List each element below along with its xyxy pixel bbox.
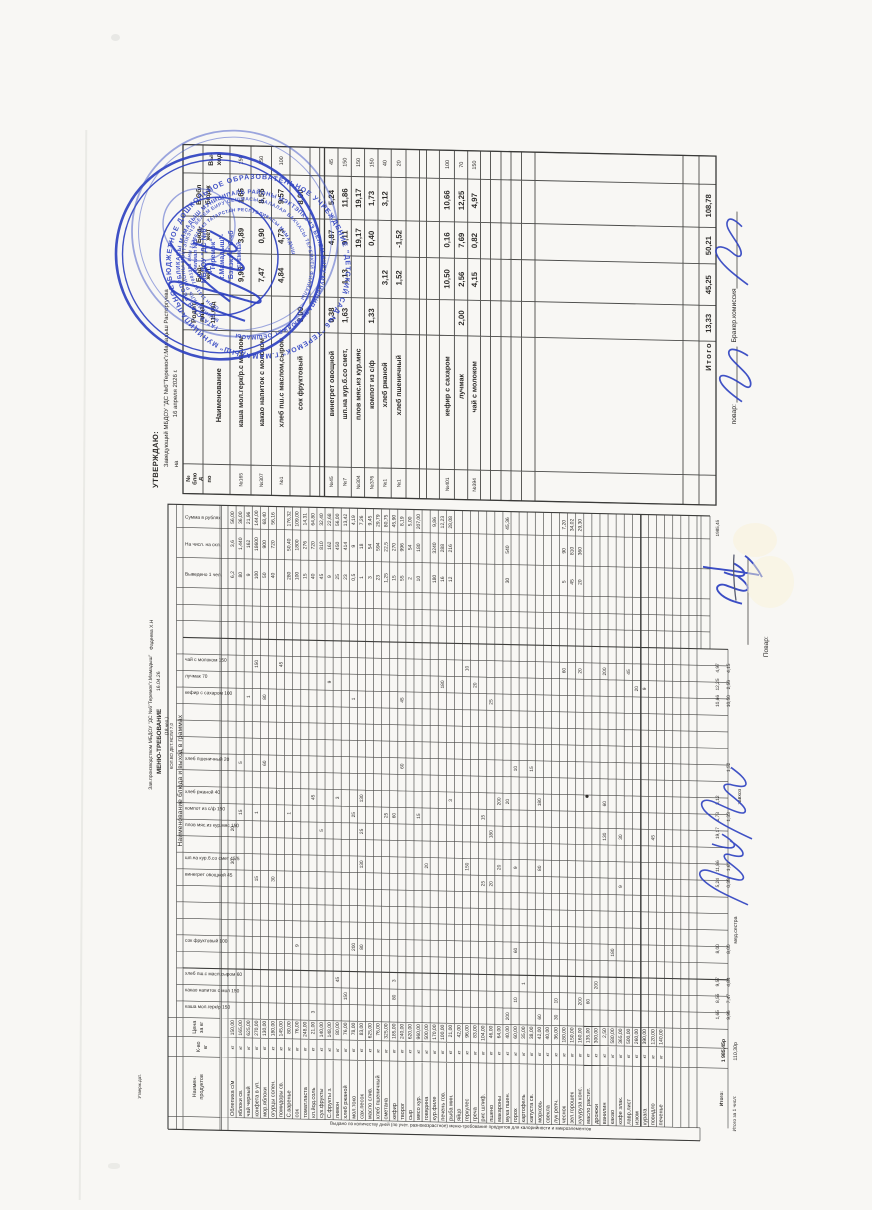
svg-text:9,57: 9,57	[715, 977, 721, 987]
svg-text:4,97: 4,97	[715, 663, 721, 673]
svg-text:260,00: 260,00	[634, 1029, 640, 1045]
svg-text:180: 180	[432, 575, 438, 584]
svg-text:13,42: 13,42	[343, 513, 349, 526]
svg-text:30: 30	[505, 578, 511, 584]
svg-text:лучмак 70: лучмак 70	[185, 673, 208, 679]
svg-text:15: 15	[238, 809, 244, 815]
svg-text:280: 280	[286, 571, 292, 580]
svg-text:60: 60	[513, 947, 519, 953]
svg-text:печенье: печенье	[659, 1104, 665, 1125]
svg-text:кг: кг	[400, 1049, 405, 1053]
svg-text:свекла: свекла	[545, 1104, 551, 1123]
svg-text:1,73: 1,73	[367, 190, 376, 206]
svg-text:кг: кг	[569, 1053, 574, 1057]
svg-text:365,00: 365,00	[618, 1028, 624, 1044]
svg-text:83,00: 83,00	[472, 1025, 478, 1038]
svg-text:15: 15	[303, 573, 309, 579]
svg-text:2,00: 2,00	[457, 310, 466, 326]
svg-text:3,89: 3,89	[236, 227, 245, 243]
svg-text:150,00: 150,00	[230, 1020, 236, 1036]
svg-text:19,17: 19,17	[354, 188, 363, 208]
svg-text:30: 30	[270, 876, 276, 882]
svg-text:390,00: 390,00	[642, 1029, 648, 1045]
svg-text:80,75: 80,75	[383, 514, 389, 527]
svg-text:20: 20	[634, 686, 640, 692]
svg-text:кг: кг	[602, 1053, 607, 1057]
svg-text:по: по	[207, 475, 213, 483]
svg-text:110,30р: 110,30р	[733, 1042, 739, 1061]
svg-text:8,19: 8,19	[400, 516, 406, 526]
svg-text:35,00: 35,00	[521, 1026, 527, 1039]
svg-text:45: 45	[335, 976, 341, 982]
svg-text:изюм: изюм	[634, 1111, 640, 1125]
svg-text:594: 594	[375, 542, 381, 551]
svg-text:130: 130	[359, 794, 365, 802]
svg-text:34,02: 34,02	[569, 518, 575, 531]
svg-text:720: 720	[311, 541, 317, 550]
svg-text:кг: кг	[448, 1050, 453, 1054]
svg-text:Зав.производством МБДОУ "ДС №6: Зав.производством МБДОУ "ДС №6"Теремок"г…	[148, 654, 154, 789]
svg-text:25: 25	[383, 812, 389, 818]
svg-text:конфета в уп.: конфета в уп.	[254, 1081, 260, 1117]
svg-text:180: 180	[440, 680, 446, 688]
svg-text:40,00: 40,00	[545, 1027, 551, 1040]
svg-text:25: 25	[359, 828, 365, 834]
svg-text:50,40: 50,40	[286, 538, 292, 551]
svg-text:248,00: 248,00	[303, 1021, 309, 1037]
svg-text:7,26: 7,26	[359, 515, 365, 525]
svg-text:кг: кг	[505, 1051, 510, 1055]
svg-text:лук репч.: лук репч.	[553, 1099, 559, 1123]
svg-text:11,86: 11,86	[715, 860, 721, 872]
svg-text:12,25: 12,25	[457, 190, 466, 210]
svg-text:9,86: 9,86	[432, 517, 438, 527]
svg-text:288: 288	[440, 544, 446, 553]
svg-text:На числ. на скл.: На числ. на скл.	[185, 542, 221, 549]
svg-text:150: 150	[369, 158, 375, 167]
svg-text:150: 150	[254, 660, 260, 668]
svg-text:8,00: 8,00	[715, 944, 721, 954]
svg-text:216: 216	[448, 544, 454, 553]
svg-text:40: 40	[383, 160, 389, 166]
svg-text:3240: 3240	[432, 542, 438, 553]
svg-text:15: 15	[392, 575, 398, 581]
svg-text:10,66: 10,66	[715, 695, 721, 707]
svg-text:60: 60	[586, 998, 592, 1004]
svg-text:180: 180	[416, 543, 422, 552]
svg-text:лимон: лимон	[335, 1102, 341, 1119]
svg-text:60: 60	[561, 668, 567, 674]
svg-text:12,25: 12,25	[715, 678, 721, 690]
svg-text:200: 200	[578, 997, 584, 1005]
svg-text:сах.песок: сах.песок	[359, 1093, 365, 1118]
svg-text:108,78: 108,78	[704, 194, 713, 217]
svg-text:200: 200	[497, 797, 503, 805]
svg-text:томат.паста: томат.паста	[303, 1086, 309, 1118]
svg-text:кур.филе: кур.филе	[432, 1096, 438, 1120]
svg-text:1: 1	[246, 695, 252, 698]
svg-text:170,00: 170,00	[432, 1024, 438, 1040]
svg-text:9: 9	[327, 680, 333, 683]
svg-text:кг: кг	[311, 1047, 316, 1051]
svg-text:сок фруктовый: сок фруктовый	[297, 356, 305, 410]
svg-text:80: 80	[238, 572, 244, 578]
svg-text:1: 1	[254, 811, 260, 814]
svg-text:162: 162	[246, 539, 252, 548]
svg-text:100: 100	[445, 160, 451, 169]
svg-text:кг: кг	[278, 1046, 283, 1050]
svg-text:рыба мин.: рыба мин.	[448, 1094, 454, 1121]
svg-text:хлеб пш.с масл,сыром 60: хлеб пш.с масл,сыром 60	[185, 971, 242, 978]
svg-text:Итого:: Итого:	[719, 1091, 725, 1107]
svg-text:60: 60	[400, 763, 406, 769]
svg-text:огурцы солен.: огурцы солен.	[270, 1080, 276, 1117]
svg-text:дрожжи: дрожжи	[594, 1104, 600, 1124]
svg-text:120,00: 120,00	[650, 1029, 656, 1045]
svg-text:№1: №1	[279, 476, 285, 484]
svg-text:80: 80	[262, 694, 268, 700]
svg-text:3: 3	[392, 979, 398, 982]
svg-text:180: 180	[489, 830, 495, 838]
svg-text:45,25: 45,25	[704, 274, 713, 294]
svg-text:45: 45	[650, 835, 656, 841]
svg-text:хлеб ржаной 40: хлеб ржаной 40	[185, 788, 220, 796]
svg-text:80,00: 80,00	[286, 1021, 292, 1034]
svg-text:36,00: 36,00	[553, 1027, 559, 1040]
svg-text:3: 3	[335, 796, 341, 799]
svg-text:11,86: 11,86	[340, 188, 349, 208]
svg-text:хлеб пшеничный: хлеб пшеничный	[395, 355, 403, 415]
svg-text:№165: №165	[239, 473, 245, 487]
svg-text:кг: кг	[650, 1055, 655, 1059]
svg-text:19,17: 19,17	[354, 228, 363, 248]
svg-text:№1: №1	[397, 479, 403, 487]
svg-text:20: 20	[397, 160, 403, 166]
svg-text:мед.сестра: мед.сестра	[733, 916, 739, 943]
svg-text:яблоки св.: яблоки св.	[238, 1089, 244, 1116]
svg-text:56,16: 56,16	[270, 512, 276, 525]
svg-text:270,00: 270,00	[254, 1020, 260, 1036]
svg-text:20: 20	[505, 799, 511, 805]
svg-text:кг: кг	[230, 1045, 235, 1049]
svg-text:60: 60	[262, 760, 268, 766]
svg-text:16.04.26: 16.04.26	[156, 671, 162, 691]
svg-text:10,50: 10,50	[443, 268, 452, 288]
svg-text:повидло: повидло	[651, 1103, 657, 1125]
svg-text:пшено: пшено	[489, 1105, 495, 1122]
svg-text:кг: кг	[424, 1050, 429, 1054]
svg-text:810: 810	[319, 541, 325, 550]
svg-text:1800: 1800	[295, 539, 301, 550]
svg-text:кг: кг	[594, 1053, 599, 1057]
svg-text:чай с молоком: чай с молоком	[471, 361, 479, 412]
svg-text:60: 60	[537, 1014, 543, 1020]
svg-text:Повар:: Повар:	[763, 636, 770, 657]
svg-text:0,5: 0,5	[351, 573, 357, 580]
svg-text:хлеб пшеничный: хлеб пшеничный	[375, 1075, 382, 1119]
svg-text:21,00: 21,00	[448, 1025, 454, 1038]
svg-text:7,47: 7,47	[726, 994, 732, 1004]
svg-text:50,21: 50,21	[704, 235, 713, 255]
svg-text:9: 9	[327, 575, 333, 578]
svg-text:№45: №45	[329, 476, 335, 487]
svg-text:кофе злак.: кофе злак.	[618, 1096, 624, 1124]
svg-text:5: 5	[561, 580, 567, 583]
svg-text:2,56: 2,56	[457, 271, 466, 287]
svg-text:компот из с/ф: компот из с/ф	[368, 360, 376, 409]
svg-text:70: 70	[459, 162, 465, 168]
svg-text:36,00: 36,00	[238, 511, 244, 524]
svg-text:4,19: 4,19	[351, 515, 357, 525]
svg-text:Наимен.: Наимен.	[192, 1076, 198, 1097]
svg-text:56,00: 56,00	[335, 513, 341, 526]
svg-text:кефир с сахаром 100: кефир с сахаром 100	[185, 690, 233, 697]
svg-text:109,00: 109,00	[295, 511, 301, 527]
svg-text:1: 1	[351, 697, 357, 700]
svg-text:ванилин: ванилин	[602, 1102, 608, 1124]
svg-text:д: д	[198, 477, 204, 481]
svg-text:83,00: 83,00	[359, 1023, 365, 1036]
svg-text:лавр.лист: лавр.лист	[626, 1098, 632, 1124]
svg-text:кг: кг	[521, 1052, 526, 1056]
svg-text:16 апреля 2026 г.: 16 апреля 2026 г.	[173, 369, 179, 417]
svg-text:162: 162	[327, 541, 333, 550]
svg-text:1,52: 1,52	[726, 762, 732, 772]
svg-text:5,00: 5,00	[408, 516, 414, 526]
svg-text:рис шлиф.: рис шлиф.	[481, 1093, 487, 1121]
svg-text:макароны: макароны	[497, 1096, 503, 1122]
svg-text:100: 100	[254, 571, 260, 580]
svg-text:9: 9	[513, 866, 519, 869]
svg-text:30: 30	[230, 859, 236, 865]
svg-text:МБДОУ "ДС №6: МБДОУ "ДС №6	[200, 229, 208, 284]
svg-text:10: 10	[513, 997, 519, 1003]
svg-text:№304: №304	[356, 475, 362, 489]
svg-text:42,00: 42,00	[537, 1026, 543, 1039]
svg-text:100,00: 100,00	[440, 1024, 446, 1040]
svg-text:60: 60	[602, 801, 608, 807]
svg-text:кг: кг	[375, 1049, 380, 1053]
svg-text:3: 3	[367, 576, 373, 579]
svg-text:9: 9	[642, 687, 648, 690]
svg-text:1,33: 1,33	[726, 812, 732, 822]
svg-text:3: 3	[448, 799, 454, 802]
svg-text:1,25: 1,25	[383, 573, 389, 583]
svg-text:9,96: 9,96	[726, 1010, 732, 1020]
svg-text:3,6: 3,6	[230, 540, 236, 547]
svg-text:45: 45	[311, 794, 317, 800]
svg-text:Заведующий МБДОУ "ДС №6"Теремо: Заведующий МБДОУ "ДС №6"Теремок"г.Мамады…	[163, 288, 170, 467]
svg-text:1: 1	[359, 576, 365, 579]
svg-text:100: 100	[295, 572, 301, 581]
svg-text:сыр: сыр	[408, 1110, 414, 1120]
svg-text:414: 414	[343, 542, 349, 551]
svg-text:200: 200	[594, 981, 600, 989]
svg-text:кг: кг	[383, 1049, 388, 1053]
svg-text:620,00: 620,00	[408, 1024, 414, 1040]
svg-text:каша мол.герк/р 150: каша мол.герк/р 150	[185, 1004, 230, 1011]
svg-text:№401: №401	[445, 477, 451, 491]
svg-text:компот из с/ф 150: компот из с/ф 150	[185, 806, 225, 813]
svg-text:кг: кг	[529, 1052, 534, 1056]
svg-text:9: 9	[295, 944, 301, 947]
svg-text:625,00: 625,00	[367, 1023, 373, 1039]
svg-text:кукуруза конс.: кукуруза конс.	[578, 1086, 584, 1123]
svg-text:1,33: 1,33	[367, 308, 376, 324]
svg-text:кг: кг	[586, 1053, 591, 1057]
svg-text:1985,45: 1985,45	[715, 519, 720, 536]
svg-text:68,40: 68,40	[262, 512, 268, 525]
svg-text:Выдано по количеству дней (по: Выдано по количеству дней (по учет. разн…	[330, 1120, 592, 1132]
svg-text:какао напиток с мол 150: какао напиток с мол 150	[185, 987, 240, 994]
svg-text:54: 54	[367, 544, 373, 550]
svg-text:1 985,45р: 1 985,45р	[721, 1039, 727, 1063]
svg-text:какао: какао	[610, 1110, 616, 1125]
svg-text:300,00: 300,00	[594, 1028, 600, 1044]
svg-text:76,00: 76,00	[375, 1023, 381, 1036]
svg-text:№394: №394	[472, 478, 478, 492]
svg-text:хлеб пшеничный 20: хлеб пшеничный 20	[185, 755, 230, 763]
svg-text:18: 18	[359, 543, 365, 549]
svg-text:80,00: 80,00	[335, 1022, 341, 1035]
svg-text:-1,52: -1,52	[394, 229, 403, 248]
svg-text:20: 20	[578, 579, 584, 585]
svg-text:кг: кг	[561, 1053, 566, 1057]
svg-text:9,45: 9,45	[367, 515, 373, 525]
svg-text:15: 15	[254, 876, 260, 882]
svg-text:30: 30	[553, 1014, 559, 1020]
svg-text:0,40: 0,40	[367, 230, 376, 246]
svg-text:104,00: 104,00	[481, 1025, 487, 1041]
svg-text:кг: кг	[472, 1051, 477, 1055]
svg-text:23: 23	[343, 574, 349, 580]
svg-text:кг: кг	[351, 1048, 356, 1052]
svg-text:КОЛ.ВО ДЕТ.ЯСЛИ 7,0: КОЛ.ВО ДЕТ.ЯСЛИ 7,0	[169, 722, 174, 769]
svg-text:геркулес: геркулес	[465, 1098, 471, 1121]
svg-text:зел.горошек: зел.горошек	[570, 1091, 576, 1123]
svg-text:10: 10	[513, 766, 519, 772]
svg-text:винегрет овощной 45: винегрет овощной 45	[185, 871, 233, 879]
svg-text:Сумма в рублях: Сумма в рублях	[185, 515, 221, 522]
svg-text:150: 150	[343, 158, 349, 167]
svg-text:45: 45	[329, 159, 335, 165]
svg-text:греча: греча	[473, 1106, 479, 1121]
svg-text:78,00: 78,00	[351, 1022, 357, 1035]
svg-text:45: 45	[278, 661, 284, 667]
svg-text:7,20: 7,20	[561, 520, 567, 530]
svg-text:кг: кг	[335, 1048, 340, 1052]
svg-text:чеснок: чеснок	[562, 1105, 568, 1123]
svg-text:кг: кг	[295, 1047, 300, 1051]
svg-text:кг: кг	[238, 1046, 243, 1050]
svg-text:3,12: 3,12	[380, 269, 389, 285]
svg-text:148,00: 148,00	[327, 1022, 333, 1038]
svg-text:54: 54	[408, 544, 414, 550]
svg-text:кг: кг	[254, 1046, 259, 1050]
svg-text:12: 12	[448, 576, 454, 582]
svg-text:996: 996	[400, 543, 406, 552]
svg-text:лучмак: лучмак	[458, 373, 466, 399]
svg-text:кг: кг	[246, 1046, 251, 1050]
svg-text:0,38: 0,38	[726, 878, 732, 888]
svg-text:кг: кг	[481, 1051, 486, 1055]
svg-text:45,90: 45,90	[392, 515, 398, 528]
svg-text:С.фрукты з.: С.фрукты з.	[327, 1087, 333, 1118]
svg-text:за кг: за кг	[199, 1022, 205, 1033]
svg-text:К-во: К-во	[196, 1041, 202, 1052]
svg-text:140,00: 140,00	[319, 1022, 325, 1038]
svg-text:мука пшен.: мука пшен.	[505, 1092, 511, 1122]
svg-text:7,69: 7,69	[457, 232, 466, 248]
svg-text:38,00: 38,00	[529, 1026, 535, 1039]
svg-text:14,31: 14,31	[303, 513, 309, 526]
svg-text:625,00: 625,00	[246, 1020, 252, 1036]
svg-text:5: 5	[238, 761, 244, 764]
svg-text:кг: кг	[578, 1053, 583, 1057]
svg-text:кг: кг	[416, 1049, 421, 1053]
svg-text:Фадеева Х.Н: Фадеева Х.Н	[149, 619, 155, 650]
svg-text:кг: кг	[537, 1052, 542, 1056]
svg-text:500,00: 500,00	[626, 1028, 632, 1044]
svg-text:96,00: 96,00	[464, 1025, 470, 1038]
svg-text:8,55: 8,55	[715, 993, 721, 1003]
svg-text:150: 150	[343, 992, 349, 1000]
svg-text:кг: кг	[392, 1049, 397, 1053]
svg-text:28,08: 28,08	[448, 516, 454, 529]
svg-text:Утверж.дат.: Утверж.дат.	[137, 1074, 142, 1098]
svg-text:5: 5	[319, 829, 325, 832]
svg-text:масло слив.: масло слив.	[368, 1087, 374, 1119]
svg-text:картофель: картофель	[521, 1094, 527, 1122]
svg-text:кг: кг	[359, 1048, 364, 1052]
svg-text:10: 10	[416, 576, 422, 582]
svg-text:46,00: 46,00	[489, 1025, 495, 1038]
svg-text:50: 50	[262, 572, 268, 578]
svg-text:кг: кг	[203, 1045, 209, 1049]
svg-text:180,00: 180,00	[270, 1021, 276, 1037]
svg-text:45: 45	[626, 669, 632, 675]
svg-text:45: 45	[400, 697, 406, 703]
svg-text:29,30: 29,30	[578, 519, 584, 532]
svg-text:144,00: 144,00	[254, 510, 260, 526]
svg-text:15: 15	[416, 813, 422, 819]
svg-text:200: 200	[602, 667, 608, 675]
svg-text:кефир: кефир	[392, 1103, 398, 1120]
svg-text:900: 900	[262, 540, 268, 549]
svg-text:200: 200	[505, 1012, 511, 1020]
svg-text:3,12: 3,12	[380, 190, 389, 206]
svg-text:360: 360	[578, 547, 584, 556]
svg-text:16: 16	[440, 576, 446, 582]
svg-text:9: 9	[246, 573, 252, 576]
svg-text:Выведено 1 чел.: Выведено 1 чел.	[185, 572, 222, 579]
svg-text:кг: кг	[618, 1054, 623, 1058]
svg-text:4,84: 4,84	[277, 267, 286, 283]
svg-text:яйцо: яйцо	[455, 1109, 462, 1122]
svg-text:9: 9	[618, 885, 624, 888]
svg-text:0,16: 0,16	[443, 232, 452, 248]
svg-text:80: 80	[537, 865, 543, 871]
svg-text:40: 40	[311, 573, 317, 579]
svg-text:Наименование: Наименование	[214, 368, 223, 422]
svg-text:160,00: 160,00	[578, 1027, 584, 1043]
svg-text:22,5: 22,5	[383, 542, 389, 552]
svg-text:20: 20	[424, 863, 430, 869]
svg-text:масло растит.: масло растит.	[586, 1087, 592, 1124]
svg-text:кг: кг	[545, 1052, 550, 1056]
svg-text:32,40: 32,40	[319, 513, 325, 526]
svg-text:сух.фрукты: сух.фрукты	[319, 1088, 325, 1118]
